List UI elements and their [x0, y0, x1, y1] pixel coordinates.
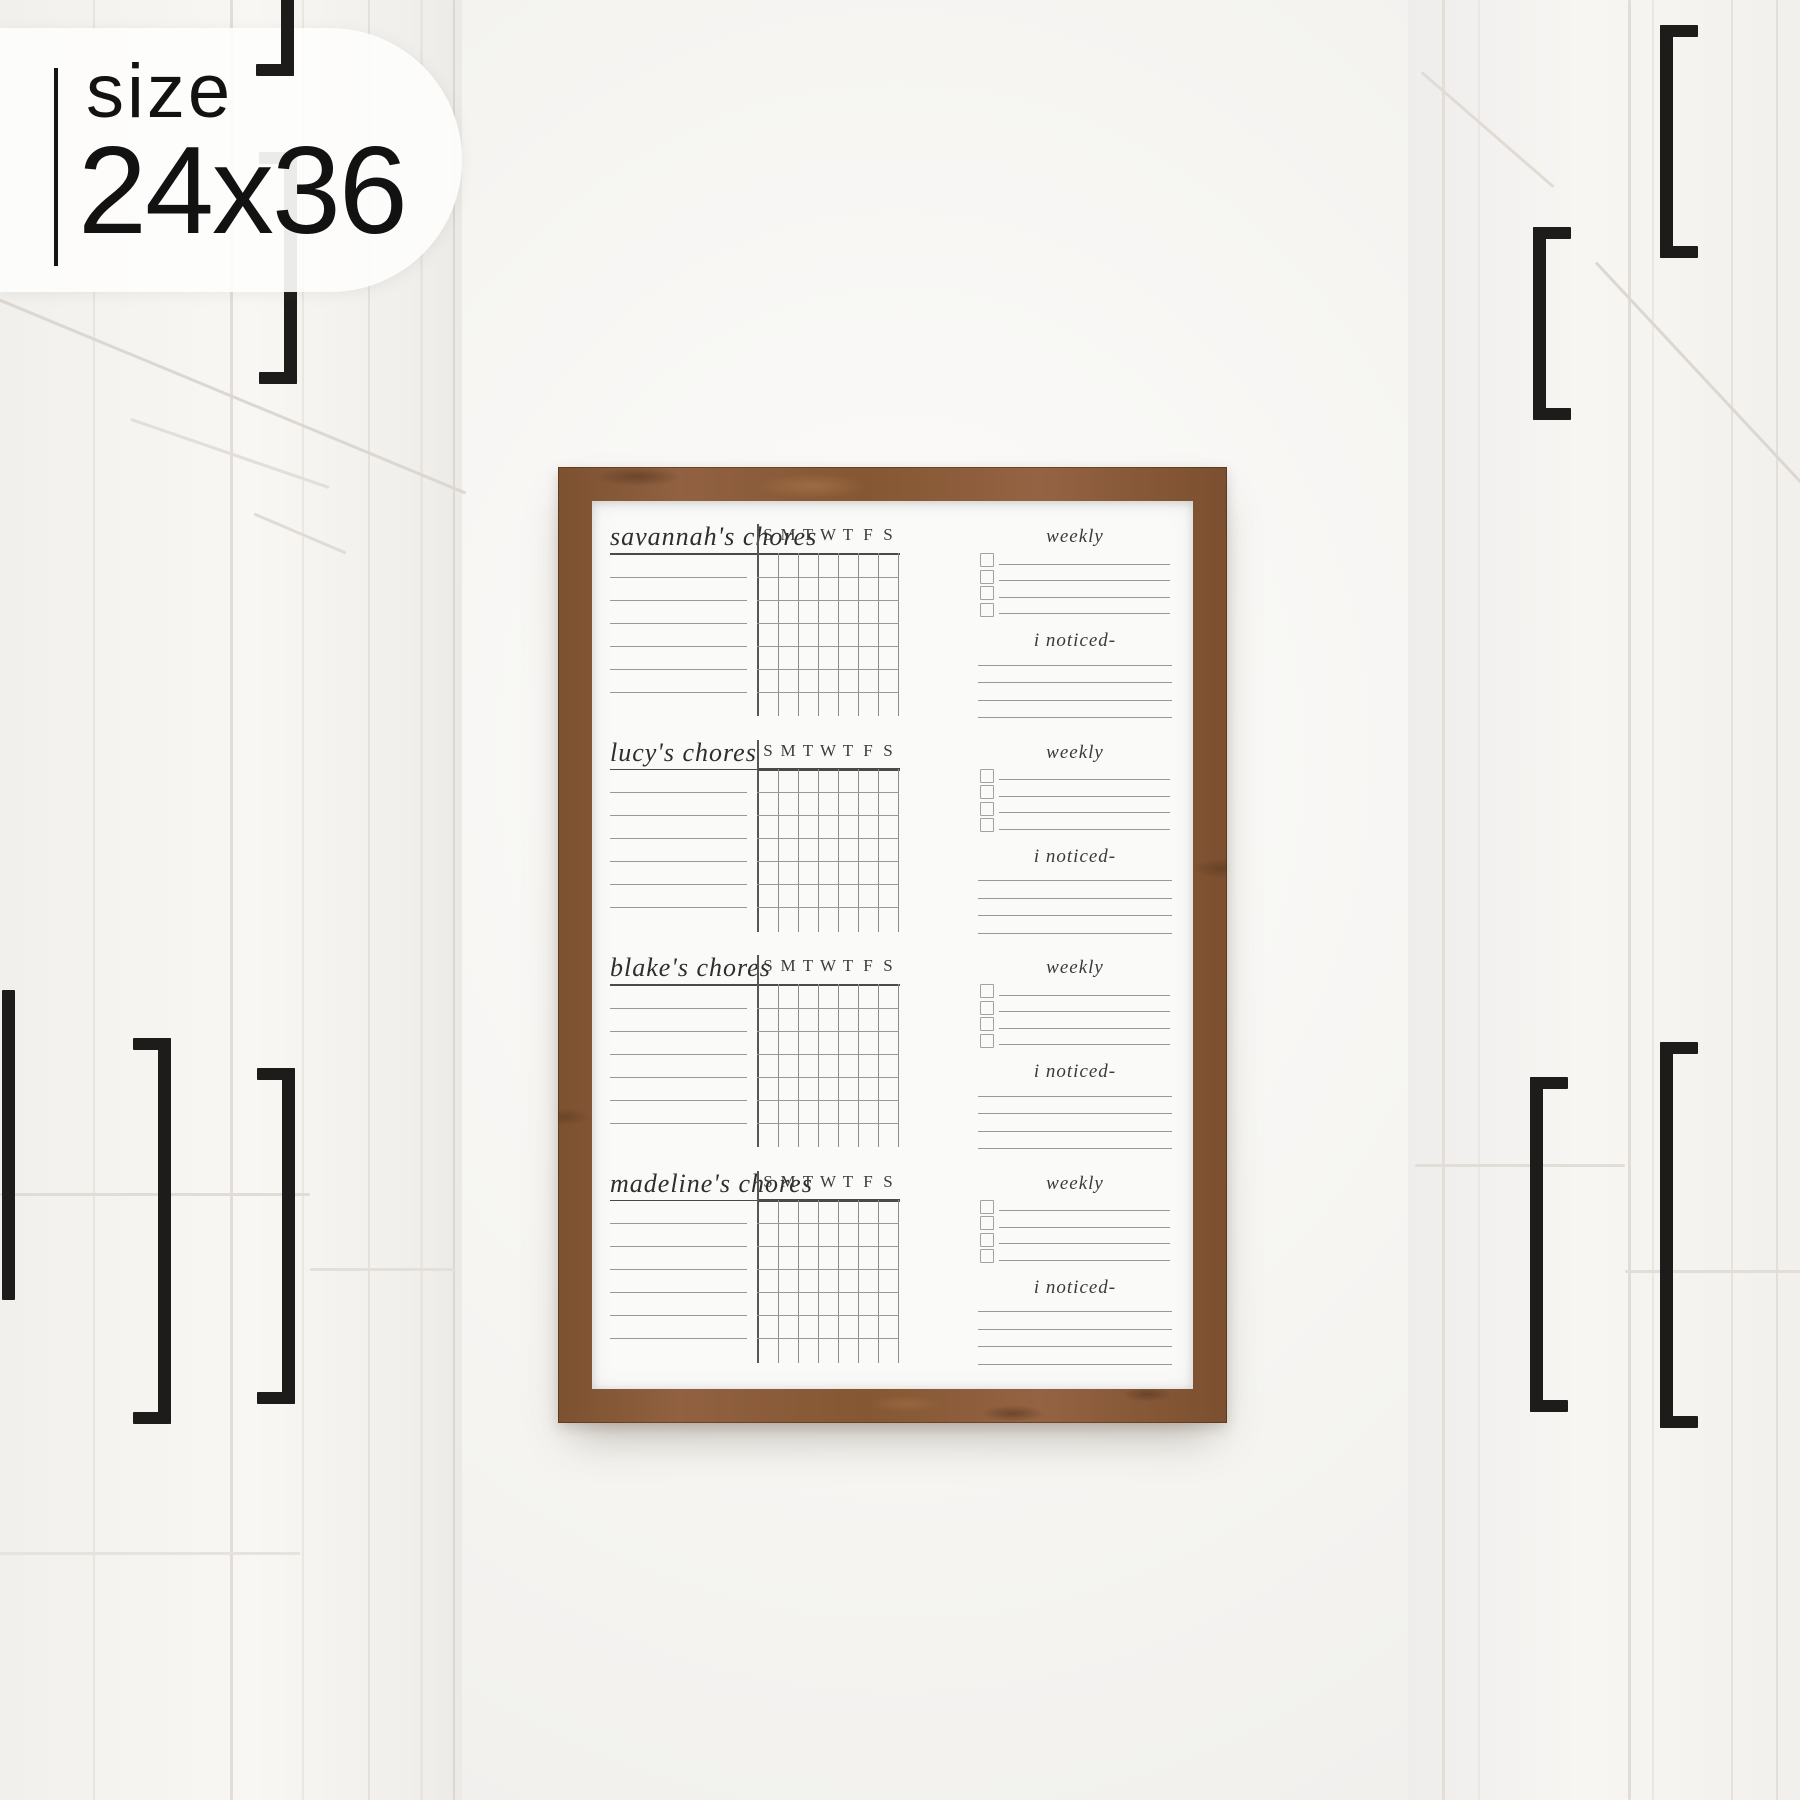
weekly-checkbox [980, 1249, 994, 1263]
grid-row-line [757, 1100, 899, 1101]
grid-row-line [757, 600, 899, 601]
grid-row-line [757, 1123, 899, 1124]
day-letter: S [758, 525, 778, 549]
chore-line [610, 1077, 747, 1078]
weekly-line [999, 1028, 1170, 1029]
chore-line [610, 1031, 747, 1032]
grid-row-line [757, 884, 899, 885]
weekly-line [999, 1210, 1170, 1211]
day-letter: T [838, 956, 858, 980]
weekly-line [999, 1243, 1170, 1244]
day-letter: T [798, 741, 818, 765]
day-letter: T [798, 1172, 818, 1196]
day-letter: S [878, 956, 898, 980]
day-letter: F [858, 956, 878, 980]
chore-line [610, 907, 747, 908]
day-letter: F [858, 1172, 878, 1196]
grid-row-line [757, 815, 899, 816]
weekly-label: weekly [978, 1173, 1172, 1195]
day-letter: F [858, 741, 878, 765]
day-letter: T [798, 525, 818, 549]
weekly-line [999, 779, 1170, 780]
grid-separator-line [757, 740, 759, 932]
noticed-line [978, 1329, 1172, 1330]
day-letter: S [758, 1172, 778, 1196]
weekly-line [999, 1227, 1170, 1228]
size-badge: size 24x36 [0, 28, 462, 292]
cabinet-rail-line [0, 1552, 300, 1555]
grid-separator-line [757, 1171, 759, 1363]
chore-line [610, 1269, 747, 1270]
cabinet-perspective-line [0, 298, 466, 494]
cabinet-stile-line [1442, 0, 1445, 1800]
grid-row-line [757, 1315, 899, 1316]
weekly-checkbox [980, 818, 994, 832]
cabinet-handle [1660, 25, 1673, 258]
cabinet-stile-line [1652, 0, 1654, 1800]
grid-row-line [757, 623, 899, 624]
day-letter: F [858, 525, 878, 549]
weekly-checkbox [980, 785, 994, 799]
cabinet-stile-line [1776, 0, 1778, 1800]
grid-row-line [757, 907, 899, 908]
cabinet-stile-line [1478, 0, 1480, 1800]
cabinet-handle [257, 1392, 295, 1404]
cabinet-handle [1530, 1077, 1568, 1089]
grid-row-line [757, 669, 899, 670]
chore-section: lucy's chores SMTWTFS weekly i noticed- [592, 738, 1193, 942]
cabinet-handle [1530, 1077, 1543, 1412]
badge-divider-line [54, 68, 58, 266]
weekly-line [999, 995, 1170, 996]
chore-line [610, 1315, 747, 1316]
noticed-line [978, 1148, 1172, 1149]
grid-row-line [757, 792, 899, 793]
chore-line [610, 1292, 747, 1293]
weekly-label: weekly [978, 957, 1172, 979]
chore-section: madeline's chores SMTWTFS weekly i notic… [592, 1169, 1193, 1373]
day-letter: M [778, 525, 798, 549]
cabinet-handle [2, 990, 15, 1300]
chore-line [610, 600, 747, 601]
chore-line [610, 692, 747, 693]
cabinet-handle [1660, 1042, 1673, 1428]
noticed-line [978, 1311, 1172, 1312]
weekly-checkbox [980, 769, 994, 783]
weekly-checkbox [980, 603, 994, 617]
noticed-label: i noticed- [978, 630, 1172, 652]
noticed-line [978, 665, 1172, 666]
weekly-line [999, 812, 1170, 813]
cabinet-stile-line [1731, 0, 1733, 1800]
cabinet-handle [282, 1068, 295, 1404]
day-letter: M [778, 956, 798, 980]
noticed-line [978, 933, 1172, 934]
chore-line [610, 884, 747, 885]
chore-line [610, 577, 747, 578]
grid-row-line [757, 838, 899, 839]
grid-row-line [757, 1338, 899, 1339]
weekly-checkbox [980, 1017, 994, 1031]
weekly-line [999, 829, 1170, 830]
cabinet-perspective-line [1420, 71, 1554, 188]
day-letter: T [798, 956, 818, 980]
cabinet-handle [1533, 227, 1571, 239]
cabinet-handle [1660, 25, 1698, 37]
grid-row-line [757, 1054, 899, 1055]
cabinet-handle [1660, 1042, 1698, 1054]
chore-line [610, 792, 747, 793]
noticed-line [978, 700, 1172, 701]
noticed-label: i noticed- [978, 1277, 1172, 1299]
grid-row-line [757, 861, 899, 862]
cabinet-handle [1530, 1400, 1568, 1412]
product-photo: size 24x36 savannah's chores SMTWTFS wee… [0, 0, 1800, 1800]
day-letter: W [818, 1172, 838, 1196]
cabinet-handle [1660, 246, 1698, 258]
weekly-line [999, 796, 1170, 797]
day-letter: S [758, 956, 778, 980]
grid-row-line [757, 1008, 899, 1009]
cabinet-handle [256, 64, 294, 76]
weekly-line [999, 564, 1170, 565]
noticed-line [978, 717, 1172, 718]
day-letter: S [758, 741, 778, 765]
weekly-checkbox [980, 1216, 994, 1230]
weekly-line [999, 1044, 1170, 1045]
noticed-line [978, 880, 1172, 881]
weekly-checkbox [980, 553, 994, 567]
chore-line [610, 1054, 747, 1055]
weekly-checkbox [980, 1233, 994, 1247]
weekly-checkbox [980, 1200, 994, 1214]
day-letter: T [838, 525, 858, 549]
wood-frame: savannah's chores SMTWTFS weekly i notic… [558, 467, 1227, 1423]
chore-line [610, 623, 747, 624]
cabinet-handle [158, 1038, 171, 1424]
cabinet-rail-line [0, 1193, 310, 1196]
weekly-checkbox [980, 1001, 994, 1015]
day-letter: W [818, 525, 838, 549]
noticed-label: i noticed- [978, 1061, 1172, 1083]
grid-separator-line [757, 524, 759, 716]
cabinet-stile-line [420, 0, 423, 1800]
chore-line [610, 669, 747, 670]
chore-line [610, 1223, 747, 1224]
grid-row-line [757, 646, 899, 647]
cabinet-handle [133, 1412, 171, 1424]
weekly-label: weekly [978, 526, 1172, 548]
cabinet-handle [257, 1068, 295, 1080]
chore-line [610, 1246, 747, 1247]
cabinet-stile-line [453, 0, 455, 1800]
cabinet-rail-line [1415, 1164, 1625, 1167]
chore-line [610, 815, 747, 816]
chore-line [610, 1008, 747, 1009]
noticed-line [978, 1096, 1172, 1097]
weekly-line [999, 613, 1170, 614]
day-letter: W [818, 956, 838, 980]
chore-line [610, 838, 747, 839]
grid-row-line [757, 1031, 899, 1032]
cabinet-handle [1533, 408, 1571, 420]
grid-row-line [757, 1269, 899, 1270]
day-letter: S [878, 525, 898, 549]
weekly-checkbox [980, 586, 994, 600]
chore-line [610, 1338, 747, 1339]
chore-chart-board: savannah's chores SMTWTFS weekly i notic… [592, 501, 1193, 1389]
cabinet-perspective-line [253, 513, 346, 555]
weekly-line [999, 1260, 1170, 1261]
badge-size-value: 24x36 [78, 120, 406, 262]
chore-line [610, 646, 747, 647]
chore-line [610, 1123, 747, 1124]
grid-separator-line [757, 955, 759, 1147]
noticed-line [978, 1113, 1172, 1114]
weekly-checkbox [980, 1034, 994, 1048]
cabinet-rail-line [1625, 1270, 1800, 1273]
weekly-checkbox [980, 984, 994, 998]
day-letter: W [818, 741, 838, 765]
grid-row-line [757, 692, 899, 693]
grid-row-line [757, 1223, 899, 1224]
grid-row-line [757, 577, 899, 578]
chore-line [610, 861, 747, 862]
chore-section: blake's chores SMTWTFS weekly i noticed- [592, 953, 1193, 1157]
cabinet-stile-line [1628, 0, 1631, 1800]
day-letter: T [838, 741, 858, 765]
cabinet-handle [259, 372, 297, 384]
chore-line [610, 1100, 747, 1101]
noticed-label: i noticed- [978, 846, 1172, 868]
cabinet-handle [133, 1038, 171, 1050]
cabinet-handle [1533, 227, 1546, 420]
day-letter: M [778, 741, 798, 765]
noticed-line [978, 898, 1172, 899]
chore-section: savannah's chores SMTWTFS weekly i notic… [592, 522, 1193, 726]
weekly-checkbox [980, 802, 994, 816]
weekly-label: weekly [978, 742, 1172, 764]
weekly-line [999, 580, 1170, 581]
grid-row-line [757, 1077, 899, 1078]
weekly-line [999, 597, 1170, 598]
weekly-checkbox [980, 570, 994, 584]
day-letter: M [778, 1172, 798, 1196]
day-letter: S [878, 741, 898, 765]
day-letter: T [838, 1172, 858, 1196]
cabinet-handle [1660, 1416, 1698, 1428]
grid-row-line [757, 1292, 899, 1293]
noticed-line [978, 915, 1172, 916]
noticed-line [978, 682, 1172, 683]
noticed-line [978, 1131, 1172, 1132]
noticed-line [978, 1364, 1172, 1365]
day-letter: S [878, 1172, 898, 1196]
grid-row-line [757, 1246, 899, 1247]
cabinet-perspective-line [1595, 261, 1800, 497]
cabinet-rail-line [310, 1268, 455, 1271]
noticed-line [978, 1346, 1172, 1347]
weekly-line [999, 1011, 1170, 1012]
